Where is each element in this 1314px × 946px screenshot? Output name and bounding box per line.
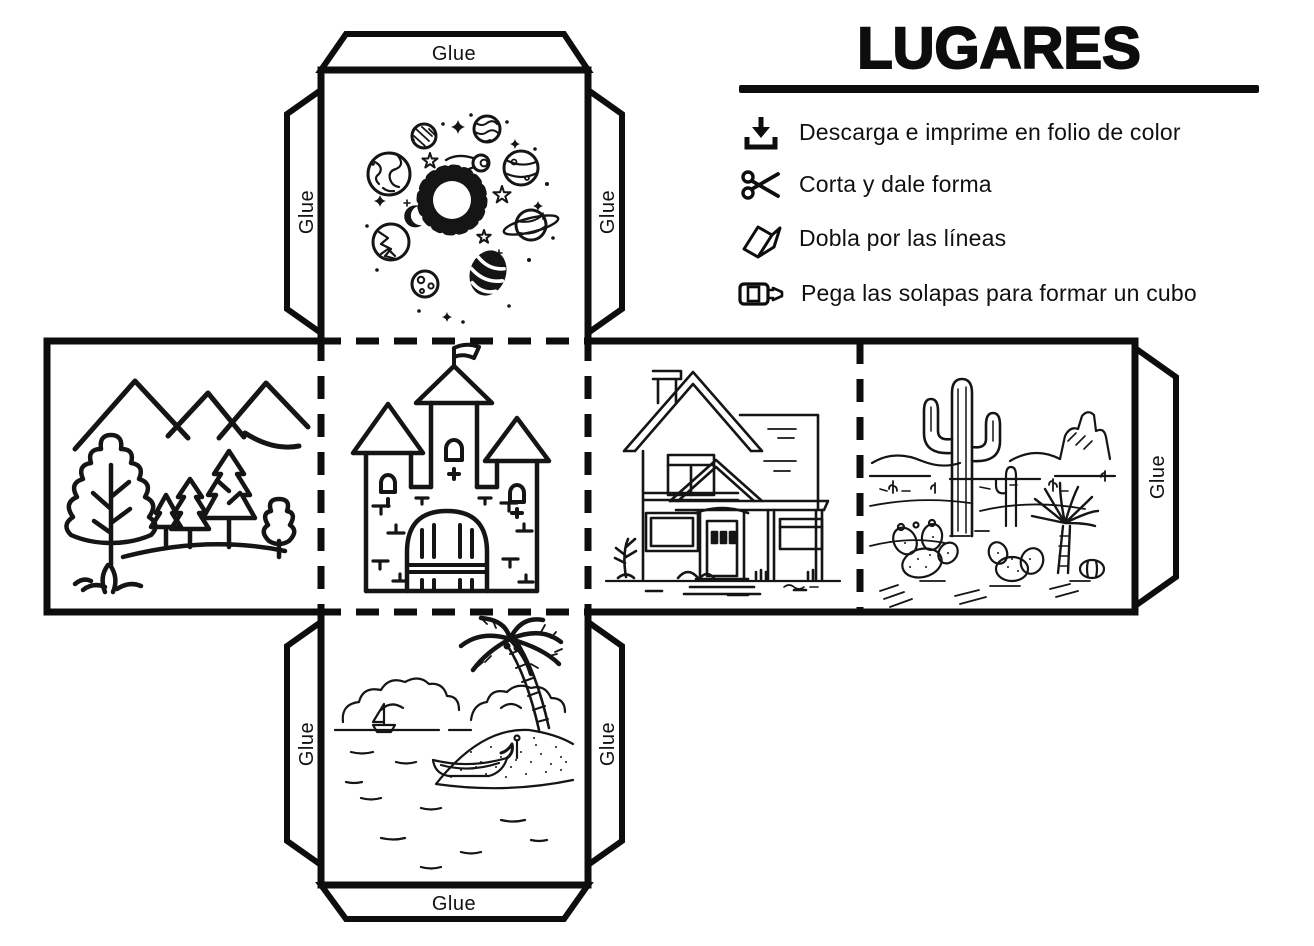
glue-label-top: Glue [432,43,476,65]
planet-striped [474,116,500,142]
worksheet-page: { "title": "LUGARES", "instructions": [ … [0,0,1314,946]
download-icon [737,113,785,153]
planet-dark-striped [464,246,512,301]
glue-label-bottom: Glue [432,893,476,915]
instruction-download: Descarga e imprime en folio de color [737,113,1263,153]
page-title: LUGARES [735,16,1263,83]
sailboat [373,704,395,732]
small-saguaro [996,467,1016,526]
mountain-peaks [75,381,308,449]
instruction-text: Descarga e imprime en folio de color [799,119,1181,146]
moon-cratered [412,271,438,297]
face-space-illustration [365,113,562,324]
scissors-icon [737,165,785,205]
house-walls [643,415,818,579]
palm-fronds [461,618,561,674]
instruction-text: Corta y dale forma [799,171,992,198]
instruction-fold: Dobla por las líneas [737,217,1263,261]
prickly-pear-middle [986,540,1047,581]
house-roof [624,371,762,451]
castle-gate [407,511,487,591]
header-panel: LUGARES Descarga e imprime en folio de c… [735,16,1263,327]
glue-label-beach-left: Glue [296,722,318,766]
instruction-text: Dobla por las líneas [799,225,1006,252]
face-mountains-illustration [66,381,308,592]
face-desert-illustration [870,379,1115,607]
face-beach-illustration [335,618,573,869]
instruction-cut: Corta y dale forma [737,165,1263,205]
face-house-illustration [606,371,840,595]
hill-curve [123,544,285,557]
face-castle-illustration [353,345,549,591]
planet-squiggle [373,224,409,260]
instruction-glue: Pega las solapas para formar un cubo [737,273,1263,315]
palm-tree [461,618,562,730]
round-cactus [1080,560,1104,578]
castle-flag [454,345,479,366]
grass-tuft [75,565,141,592]
glue-label-desert-right: Glue [1147,455,1169,499]
planet-earth [368,153,410,195]
saguaro-cactus [924,379,1000,536]
instruction-list: Descarga e imprime en folio de color Cor… [735,113,1263,315]
big-tree [66,435,155,565]
title-underline [739,85,1259,93]
water-ripples [346,752,547,869]
planet-banded [504,151,538,185]
glue-stick-icon [737,273,787,315]
rowboat [433,736,520,777]
glue-label-space-left: Glue [296,190,318,234]
planet-hatched [412,124,436,148]
fold-icon [737,217,785,261]
glue-label-beach-right: Glue [597,722,619,766]
instruction-text: Pega las solapas para formar un cubo [801,280,1197,307]
pine-trees [151,451,255,547]
planet-saturn [500,204,562,247]
glue-label-space-right: Glue [597,190,619,234]
